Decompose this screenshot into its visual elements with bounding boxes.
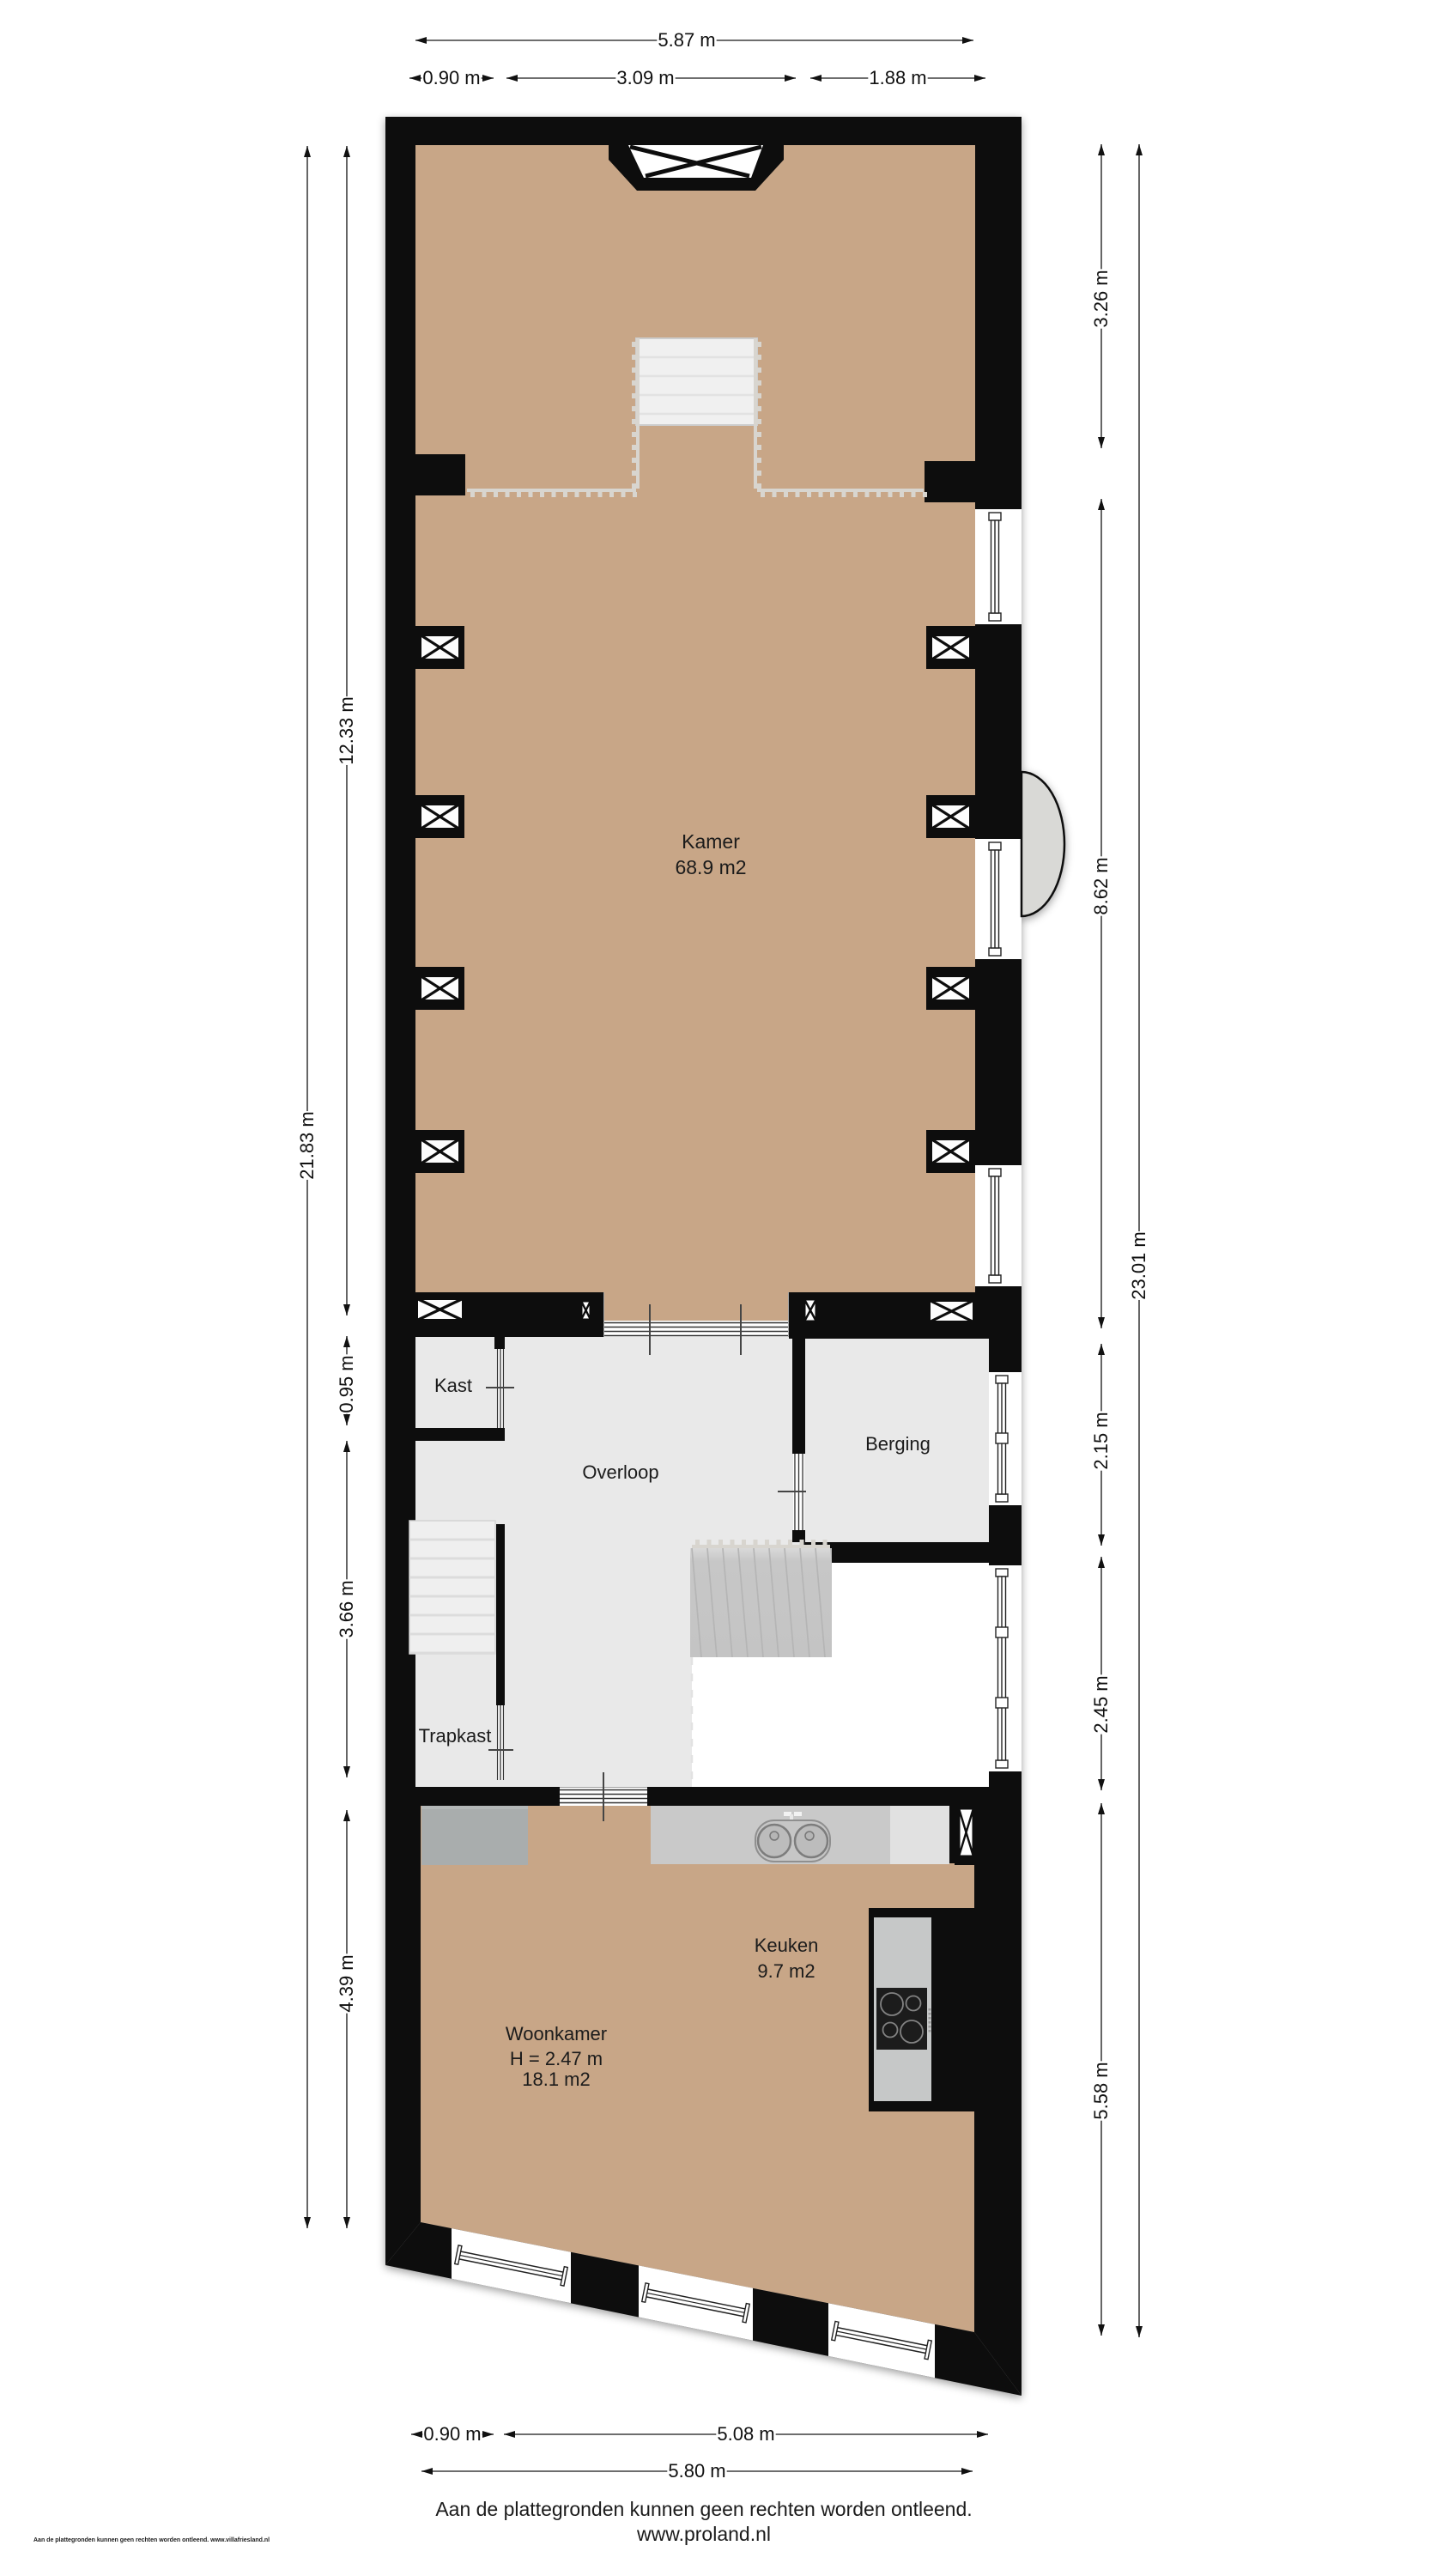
svg-text:2.45 m: 2.45 m bbox=[1090, 1675, 1112, 1733]
svg-text:Berging: Berging bbox=[865, 1433, 931, 1455]
svg-text:8.62 m: 8.62 m bbox=[1090, 857, 1112, 914]
svg-text:9.7 m2: 9.7 m2 bbox=[757, 1960, 815, 1982]
svg-text:0.90 m: 0.90 m bbox=[423, 2423, 481, 2445]
svg-text:3.26 m: 3.26 m bbox=[1090, 270, 1112, 327]
svg-text:www.proland.nl: www.proland.nl bbox=[636, 2523, 771, 2545]
svg-text:3.09 m: 3.09 m bbox=[616, 67, 674, 88]
svg-text:1.88 m: 1.88 m bbox=[869, 67, 926, 88]
svg-text:4.39 m: 4.39 m bbox=[336, 1954, 357, 2012]
svg-text:Aan de plattegronden kunnen ge: Aan de plattegronden kunnen geen rechten… bbox=[435, 2498, 972, 2520]
svg-text:Trapkast: Trapkast bbox=[419, 1725, 492, 1747]
svg-text:5.87 m: 5.87 m bbox=[658, 29, 715, 51]
svg-text:21.83 m: 21.83 m bbox=[296, 1111, 318, 1180]
svg-text:23.01 m: 23.01 m bbox=[1128, 1231, 1149, 1300]
svg-text:Woonkamer: Woonkamer bbox=[506, 2023, 607, 2044]
svg-text:5.08 m: 5.08 m bbox=[717, 2423, 774, 2445]
svg-text:5.80 m: 5.80 m bbox=[668, 2460, 725, 2482]
svg-text:0.95 m: 0.95 m bbox=[336, 1355, 357, 1413]
svg-text:0.90 m: 0.90 m bbox=[422, 67, 480, 88]
svg-text:3.66 m: 3.66 m bbox=[336, 1580, 357, 1637]
svg-text:68.9 m2: 68.9 m2 bbox=[675, 856, 746, 878]
svg-text:Aan de plattegronden kunnen ge: Aan de plattegronden kunnen geen rechten… bbox=[33, 2537, 270, 2543]
svg-text:12.33 m: 12.33 m bbox=[336, 696, 357, 765]
svg-text:H = 2.47 m: H = 2.47 m bbox=[510, 2048, 603, 2069]
svg-text:Kamer: Kamer bbox=[682, 830, 740, 853]
svg-text:Overloop: Overloop bbox=[582, 1461, 658, 1483]
svg-text:Kast: Kast bbox=[434, 1375, 472, 1396]
svg-text:2.15 m: 2.15 m bbox=[1090, 1412, 1112, 1469]
svg-text:5.58 m: 5.58 m bbox=[1090, 2062, 1112, 2119]
svg-text:18.1 m2: 18.1 m2 bbox=[522, 2069, 591, 2090]
svg-text:Keuken: Keuken bbox=[755, 1935, 819, 1956]
